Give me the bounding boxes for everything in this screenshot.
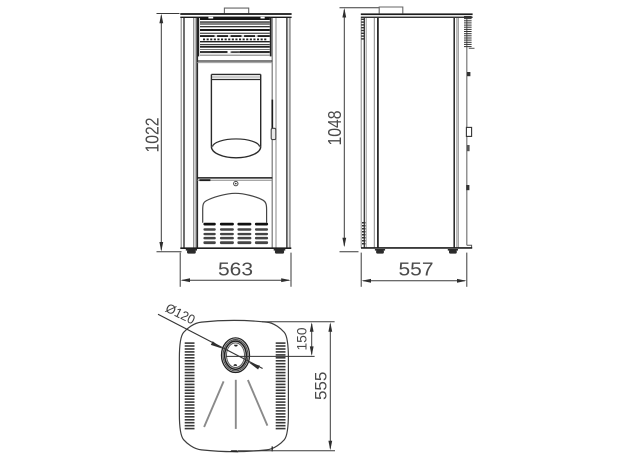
- svg-text:1022: 1022: [142, 118, 162, 153]
- svg-text:555: 555: [311, 372, 330, 401]
- svg-text:150: 150: [293, 327, 309, 350]
- svg-text:563: 563: [218, 258, 253, 279]
- svg-text:557: 557: [399, 258, 434, 279]
- svg-text:1048: 1048: [325, 111, 345, 146]
